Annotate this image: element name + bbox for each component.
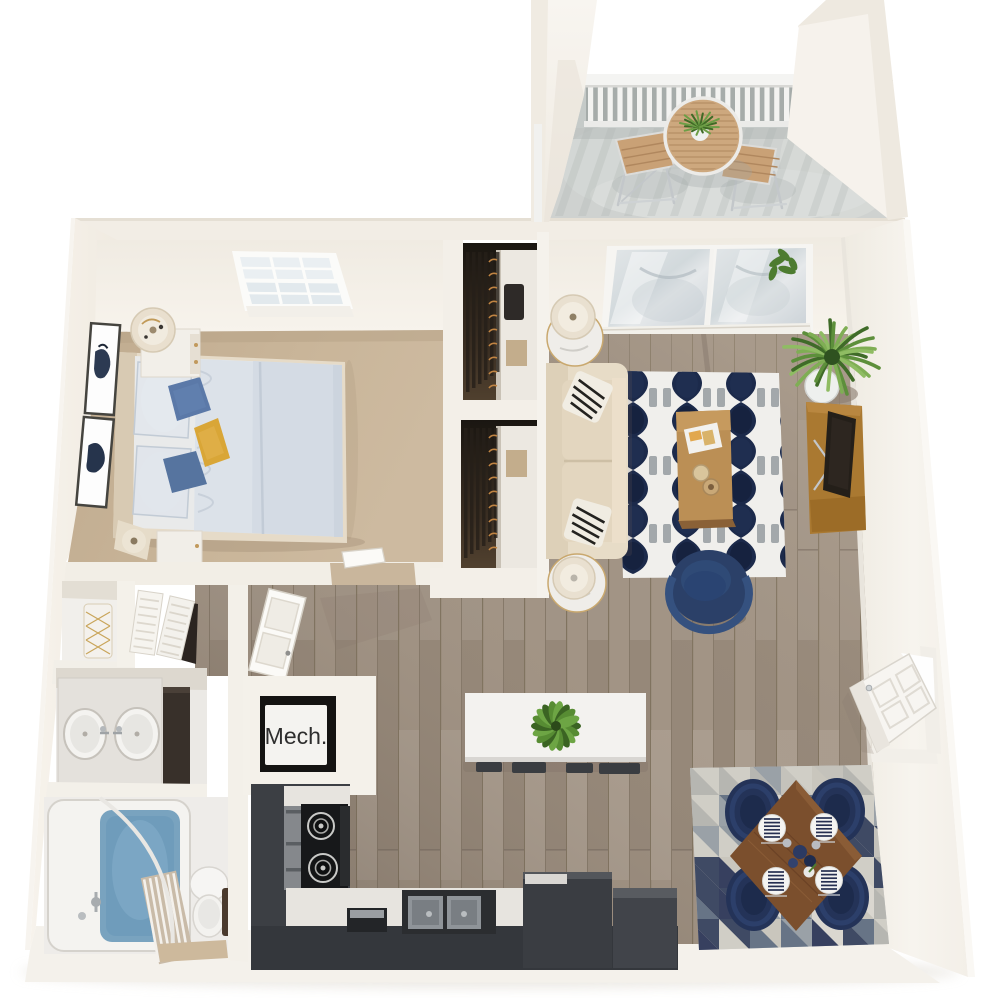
svg-text:Mech.: Mech. <box>265 723 328 749</box>
